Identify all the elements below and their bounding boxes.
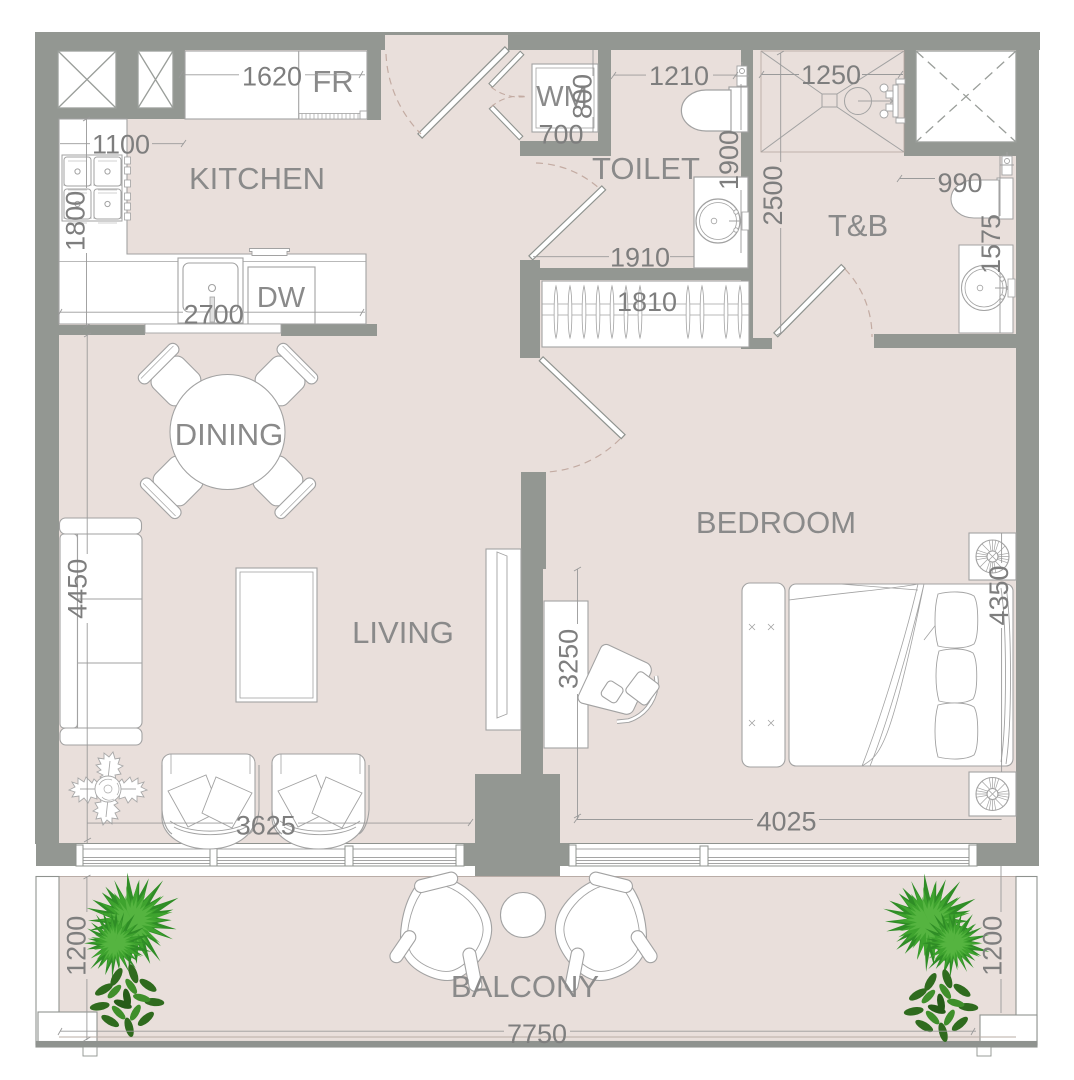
svg-text:800: 800 xyxy=(568,74,598,119)
svg-text:KITCHEN: KITCHEN xyxy=(189,161,325,196)
svg-text:FR: FR xyxy=(312,64,353,99)
svg-text:1620: 1620 xyxy=(242,62,302,92)
svg-text:3250: 3250 xyxy=(554,629,584,689)
svg-text:990: 990 xyxy=(937,168,982,198)
svg-text:DW: DW xyxy=(257,282,306,314)
svg-text:2500: 2500 xyxy=(758,165,788,225)
svg-text:BEDROOM: BEDROOM xyxy=(696,505,856,540)
svg-text:3625: 3625 xyxy=(236,811,296,841)
svg-text:1250: 1250 xyxy=(801,60,861,90)
svg-text:1210: 1210 xyxy=(649,61,709,91)
svg-text:700: 700 xyxy=(538,120,583,150)
svg-text:1800: 1800 xyxy=(61,191,91,251)
svg-text:4025: 4025 xyxy=(756,807,816,837)
svg-text:1200: 1200 xyxy=(977,916,1007,976)
svg-text:1910: 1910 xyxy=(610,243,670,273)
svg-text:1900: 1900 xyxy=(714,130,744,190)
svg-text:1100: 1100 xyxy=(92,130,150,160)
svg-text:4350: 4350 xyxy=(984,565,1014,625)
svg-text:LIVING: LIVING xyxy=(352,615,454,650)
svg-text:DINING: DINING xyxy=(175,417,284,452)
svg-text:BALCONY: BALCONY xyxy=(451,969,599,1004)
svg-text:TOILET: TOILET xyxy=(592,151,700,186)
svg-text:1200: 1200 xyxy=(62,916,92,976)
svg-text:2700: 2700 xyxy=(184,300,244,330)
svg-text:T&B: T&B xyxy=(828,208,888,243)
svg-text:7750: 7750 xyxy=(507,1019,567,1049)
svg-text:1810: 1810 xyxy=(617,287,677,317)
svg-text:4450: 4450 xyxy=(63,559,93,619)
svg-text:1575: 1575 xyxy=(976,214,1006,274)
